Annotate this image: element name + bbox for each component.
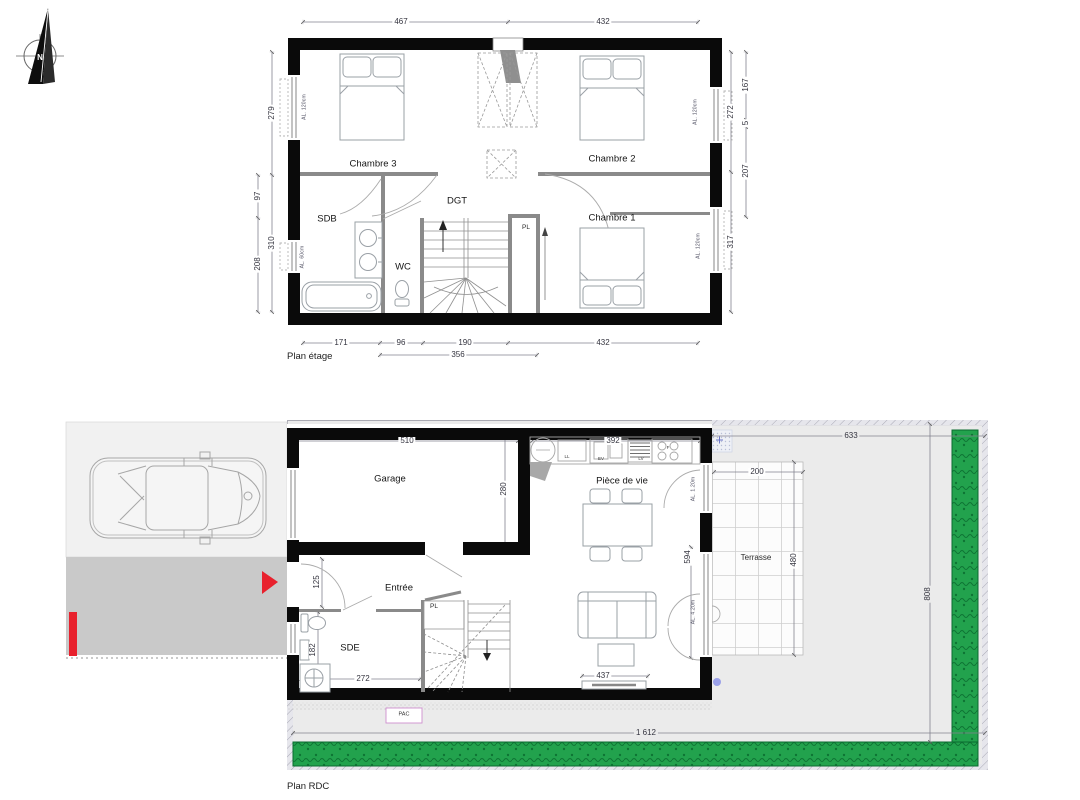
dim-sde-width: 272 [354,675,371,683]
appliance-label-ev: EV [598,457,604,462]
room-label-dgt: DGT [447,196,467,206]
dim-bay-window: 594 [684,548,692,565]
dim-terrasse-width: 200 [748,468,765,476]
dim-etage-left-a: 279 [268,104,276,121]
appliance-label-lv: LV [638,457,643,462]
room-label-sdb: SDB [317,214,337,224]
dim-garage-width: 510 [398,437,415,445]
etage-plan-title: Plan étage [287,352,332,362]
pac-label: PAC [399,712,410,718]
utility-speckle-box [712,430,732,452]
dim-etage-right-outer-c: 207 [742,162,750,179]
floorplan-sheet: 467 432 279 310 97 208 272 317 167 5 207… [0,0,1080,800]
compass-north-letter: N [37,54,43,62]
dim-etage-right-outer-a: 167 [742,76,750,93]
window-label-sdb: AL. 60cm [301,246,306,269]
room-label-sde: SDE [340,643,360,653]
dim-total-width: 1 612 [634,729,658,737]
window-label-c1: AL. 120cm [697,233,702,259]
dim-garden-height: 808 [924,585,932,602]
etage-furniture [302,54,644,311]
window-label-salon-top: AL. 1.20m [692,477,697,502]
room-label-pl-etage: PL [522,225,530,232]
dim-etage-right-outer-b: 5 [742,119,750,127]
hedge-bottom [293,742,978,766]
dim-etage-bottom-total: 356 [449,351,466,359]
dim-garage-height: 280 [500,480,508,497]
dim-etage-bottom-a: 171 [332,339,349,347]
dim-etage-left-inner-a: 97 [254,190,262,203]
window-label-c2: AL. 120cm [694,99,699,125]
red-marker-bar [69,612,77,656]
dim-kitchen-width: 392 [604,437,621,445]
dim-etage-right-b: 317 [727,233,735,250]
dim-garden-width: 633 [842,432,859,440]
driveway-path [66,557,287,655]
rdc-plan [66,420,988,770]
plan-linework [0,0,1080,800]
room-label-chambre2: Chambre 2 [589,154,636,164]
room-label-chambre3: Chambre 3 [350,159,397,169]
utility-dot [713,678,721,686]
dim-radiator: 437 [594,672,611,680]
dim-terrasse-height: 480 [790,551,798,568]
house-floor [287,424,712,700]
compass-icon [16,8,64,84]
room-label-entree: Entrée [385,583,413,593]
dim-etage-top-left: 467 [392,18,409,26]
dim-etage-top-right: 432 [594,18,611,26]
dim-etage-right-a: 272 [727,103,735,120]
car-icon [90,452,266,544]
dim-etage-bottom-b: 96 [395,339,408,347]
room-label-terrasse: Terrasse [741,554,772,562]
rdc-plan-title: Plan RDC [287,782,329,792]
room-label-piece-de-vie: Pièce de vie [596,476,648,486]
dim-etage-bottom-c: 190 [456,339,473,347]
etage-stairs [424,218,548,313]
window-label-c3: AL. 120cm [303,94,308,120]
appliance-label-ll: LL [564,455,569,460]
etage-plan [258,22,746,355]
dim-etage-bottom-d: 432 [594,339,611,347]
hedge-right [952,430,978,742]
room-label-pl-rdc: PL [430,604,438,611]
appliance-label-four: F [667,446,670,451]
dim-entree-door: 125 [313,573,321,590]
dim-etage-left-inner-b: 208 [254,255,262,272]
window-label-salon-bay: AL. 4.20m [692,600,697,625]
dim-etage-left-b: 310 [268,234,276,251]
room-label-garage: Garage [374,474,406,484]
house-apron [287,702,712,710]
room-label-wc: WC [395,262,411,272]
room-label-chambre1: Chambre 1 [589,213,636,223]
dim-sde-height: 182 [309,641,317,658]
